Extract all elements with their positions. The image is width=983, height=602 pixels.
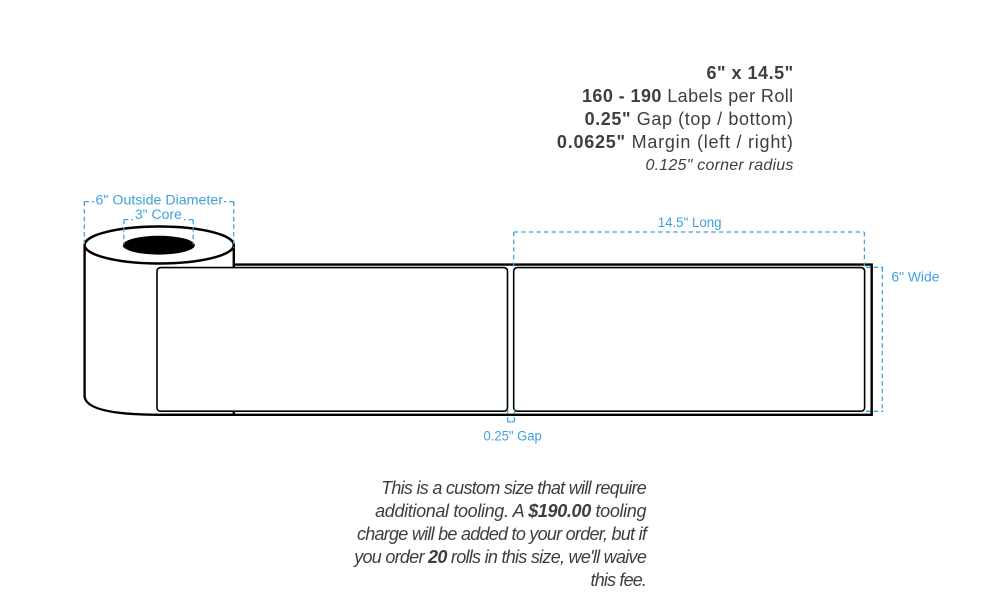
- svg-text:0.25" Gap: 0.25" Gap: [484, 428, 542, 443]
- svg-text:6" Outside Diameter: 6" Outside Diameter: [96, 193, 224, 208]
- svg-text:14.5" Long: 14.5" Long: [658, 215, 722, 230]
- svg-text:3" Core: 3" Core: [135, 207, 182, 222]
- svg-text:6" Wide: 6" Wide: [891, 269, 939, 284]
